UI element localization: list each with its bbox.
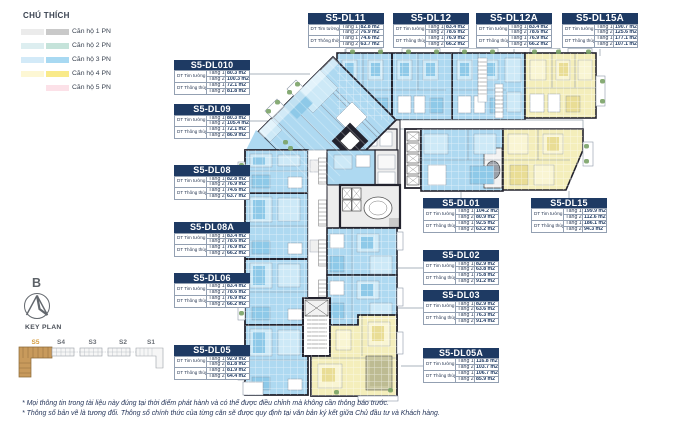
svg-text:S5: S5: [32, 339, 40, 346]
svg-text:S3: S3: [89, 339, 97, 346]
svg-text:S4: S4: [57, 339, 65, 346]
svg-text:S1: S1: [147, 339, 155, 346]
svg-text:S2: S2: [119, 339, 127, 346]
